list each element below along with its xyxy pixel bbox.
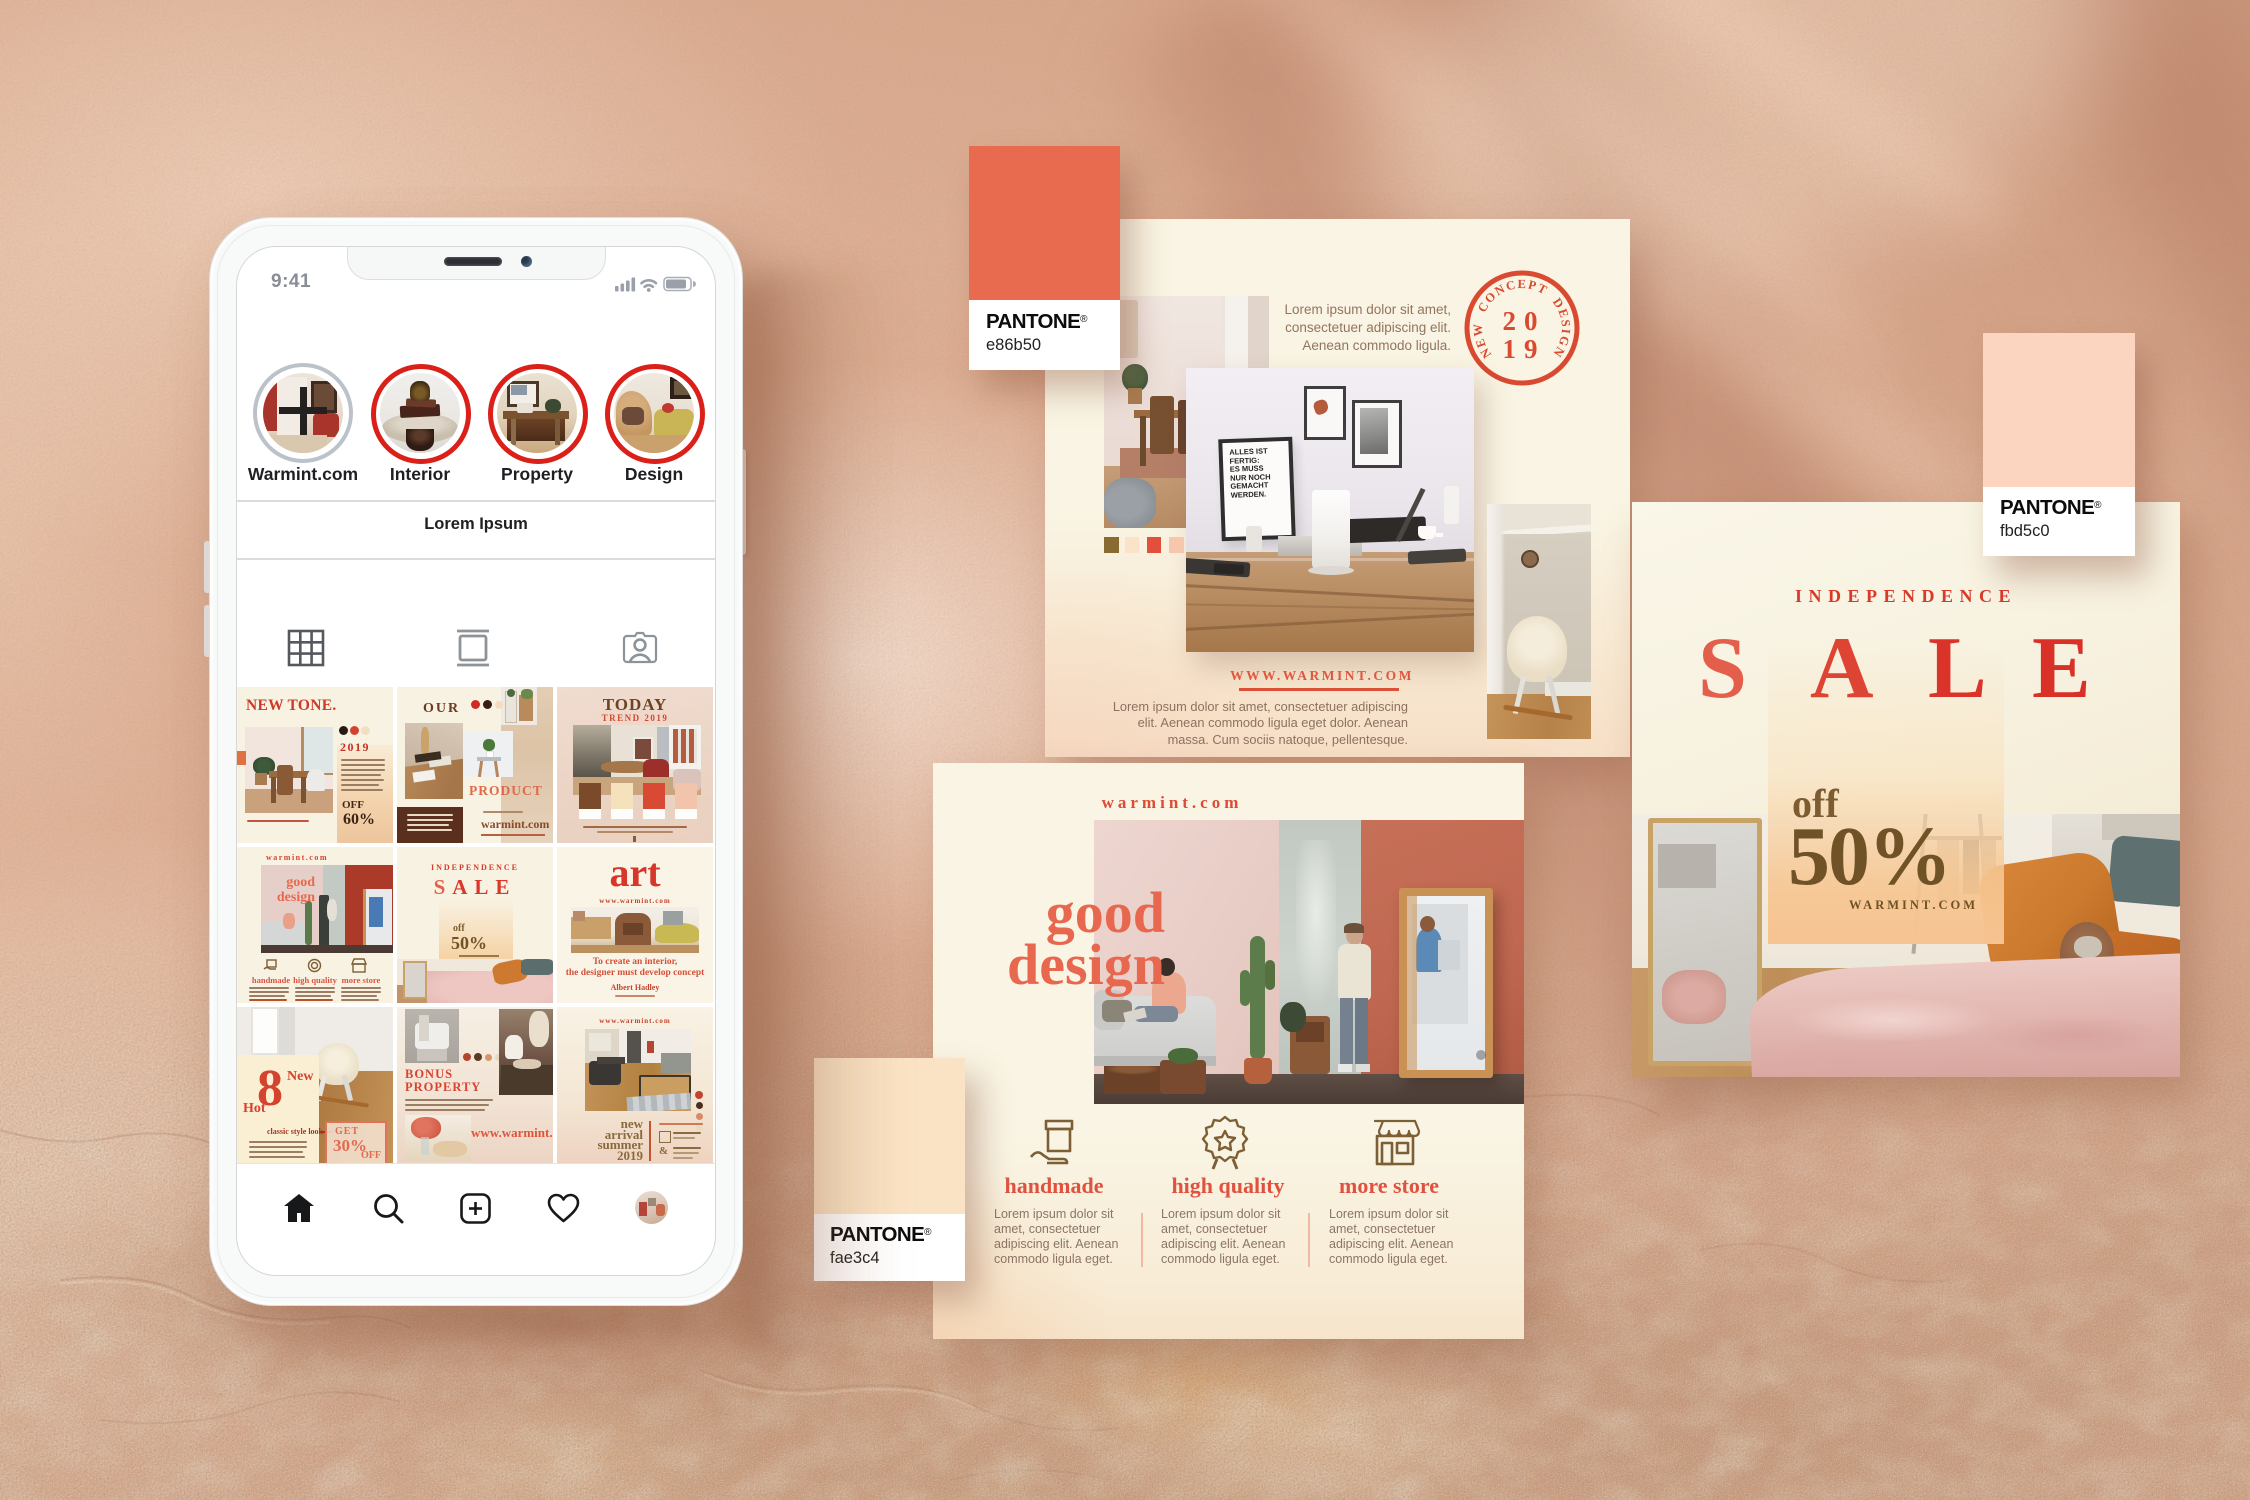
svg-text:20: 20 [1503,306,1546,336]
svg-text:19: 19 [1503,334,1546,364]
